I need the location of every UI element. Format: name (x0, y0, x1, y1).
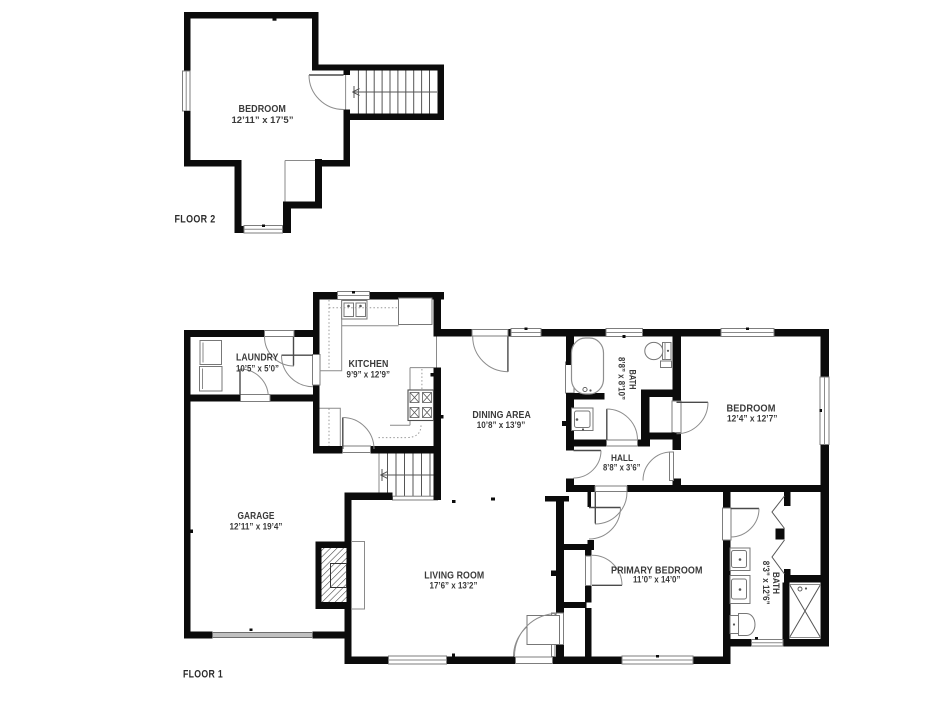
svg-text:12’11” x 17’5”: 12’11” x 17’5” (232, 115, 294, 126)
svg-text:9’9” x 12’9”: 9’9” x 12’9” (347, 370, 391, 381)
svg-text:12’11” x 19’4”: 12’11” x 19’4” (230, 522, 283, 533)
svg-text:GARAGE: GARAGE (238, 511, 275, 522)
svg-text:8’8” x 8’10”: 8’8” x 8’10” (617, 357, 627, 400)
svg-text:10’5” x 5’0”: 10’5” x 5’0” (236, 364, 279, 375)
svg-text:8’3” x 12’6”: 8’3” x 12’6” (761, 561, 771, 605)
svg-text:KITCHEN: KITCHEN (349, 359, 389, 370)
svg-text:BATH: BATH (627, 370, 637, 390)
svg-text:17’6” x 13’2”: 17’6” x 13’2” (430, 581, 478, 592)
svg-text:FLOOR 2: FLOOR 2 (175, 214, 216, 226)
svg-text:LAUNDRY: LAUNDRY (236, 353, 279, 364)
svg-text:11’0” x 14’0”: 11’0” x 14’0” (633, 575, 681, 586)
svg-text:FLOOR 1: FLOOR 1 (183, 669, 223, 681)
svg-text:10’8” x 13’9”: 10’8” x 13’9” (477, 420, 526, 431)
svg-text:BATH: BATH (771, 572, 781, 594)
svg-text:8’8” x 3’6”: 8’8” x 3’6” (603, 463, 641, 473)
svg-text:HALL: HALL (611, 453, 634, 463)
svg-text:12’4” x 12’7”: 12’4” x 12’7” (727, 413, 778, 424)
svg-text:BEDROOM: BEDROOM (239, 104, 287, 115)
